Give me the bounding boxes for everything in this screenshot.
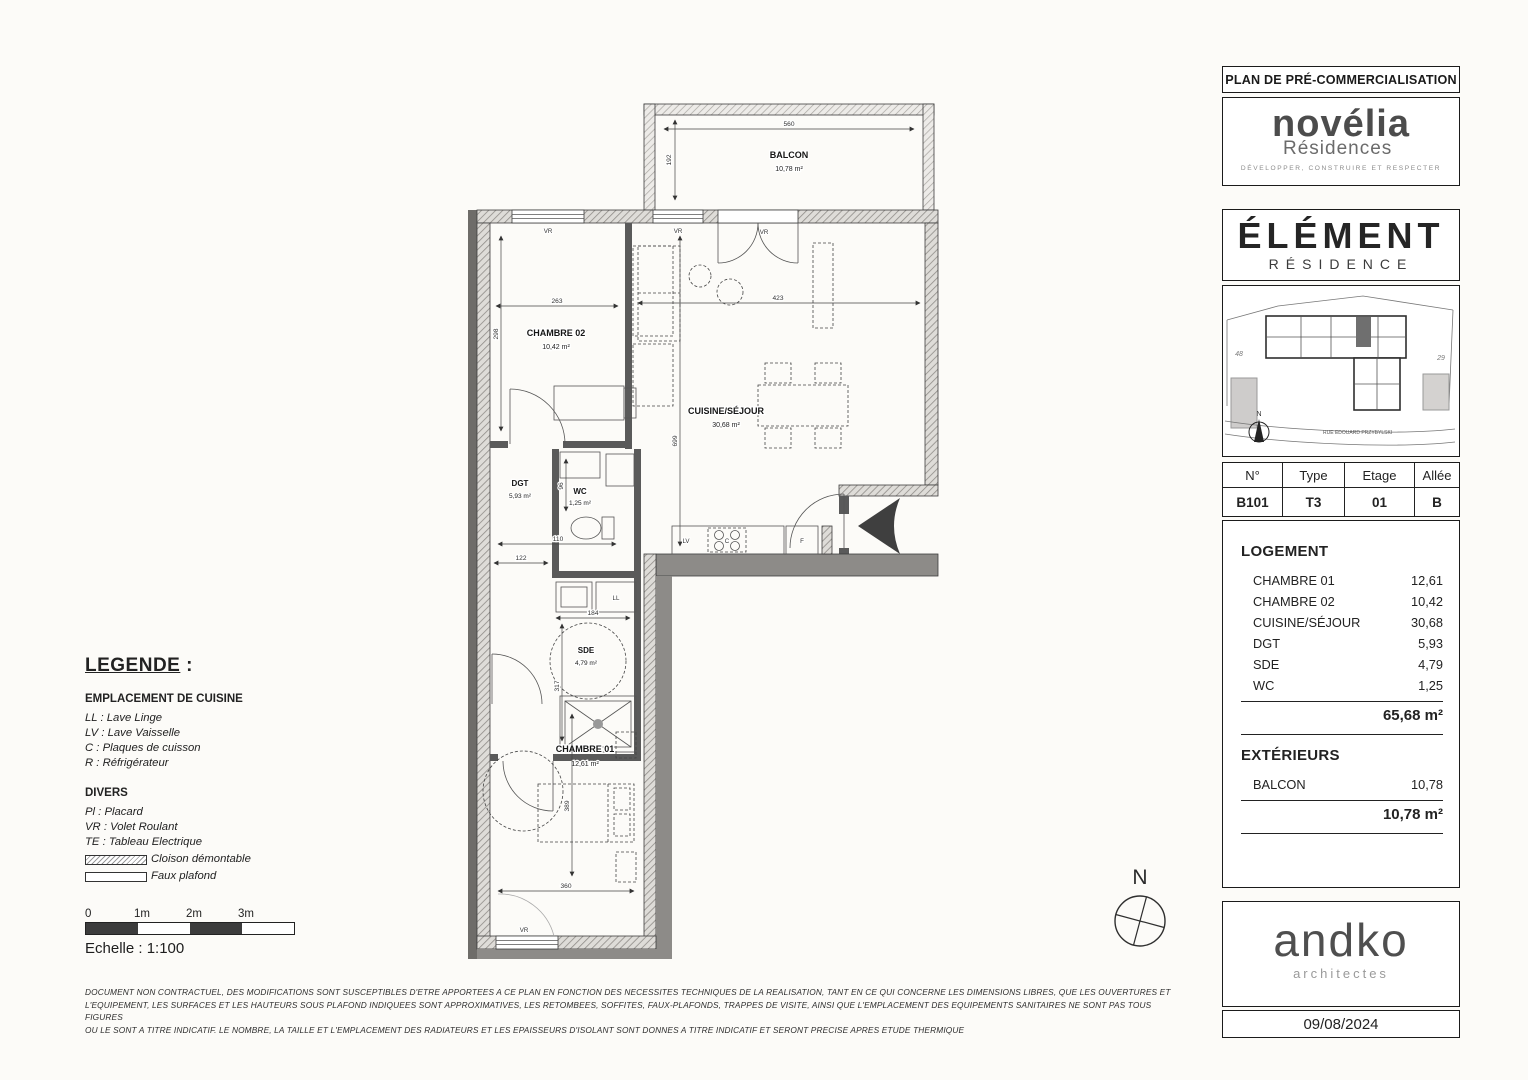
exterieurs-total: 10,78 m² [1241,801,1443,828]
floor-plan-drawing: 560 192 BALCON 10,78 m² [468,96,944,970]
area-row: CHAMBRE 0112,61 [1241,570,1443,591]
dim-balcon-height: 192 [666,154,673,165]
entrance-door-arc [790,494,844,548]
entrance-arrow-icon [858,498,900,554]
door-arc [492,654,542,704]
room-balcon-name: BALCON [770,150,809,160]
bed-chambre02 [554,386,624,420]
novelia-logo: novélia Résidences DÉVELOPPER, CONSTRUIR… [1222,97,1460,186]
novelia-tagline: DÉVELOPPER, CONSTRUIRE ET RESPECTER [1223,165,1459,172]
window [653,210,703,223]
disclaimer-line: L'EQUIPEMENT, LES SURFACES ET LES HAUTEU… [85,999,1180,1024]
pouf [689,265,711,287]
label-c: C [725,538,730,545]
north-indicator: N [1108,866,1172,957]
highlighted-unit [1356,317,1371,347]
legend-title: LEGENDE : [85,655,355,677]
legend-item: R : Réfrigérateur [85,756,355,771]
dim-sde-width: 184 [587,610,598,617]
placard [633,246,673,336]
legend-item: Pl : Placard [85,805,355,820]
turning-circle [483,751,563,831]
room-chambre02-name: CHAMBRE 02 [527,328,586,338]
room-wc-name: WC [573,487,587,496]
logement-total: 65,68 m² [1241,702,1443,729]
legend-swatch-row: Faux plafond [85,869,355,884]
scale-bar-segments [85,922,295,935]
scale-tick: 0 [85,908,91,920]
disclaimer-line: DOCUMENT NON CONTRACTUEL, DES MODIFICATI… [85,986,1180,999]
plain-swatch-icon [85,872,147,882]
legend-item: VR : Volet Roulant [85,820,355,835]
french-door-opening [718,210,798,223]
scale-tick: 1m [134,908,150,920]
logement-title: LOGEMENT [1241,543,1443,560]
exterieurs-title: EXTÉRIEURS [1241,747,1443,764]
label-vr-1: VR [544,228,553,235]
window [496,936,558,949]
legend-cuisine-title: EMPLACEMENT DE CUISINE [85,693,355,705]
unit-header-floor: Etage [1345,463,1415,488]
unit-header-alley: Allée [1415,463,1459,488]
scale-tick: 3m [238,908,254,920]
disclaimer: DOCUMENT NON CONTRACTUEL, DES MODIFICATI… [85,986,1180,1036]
exterior-walls: VR VR VR VR [477,210,938,959]
room-cuisine-area: 30,68 m² [712,422,740,429]
label-vr-3: VR [760,229,769,236]
unit-value-alley: B [1415,488,1459,516]
room-chambre01: CHAMBRE 01 12,61 m² 389 360 [483,714,636,891]
site-map: 48 29 RUE EDOUARD PRZYBYLSKI N [1222,285,1460,457]
nightstand [616,852,636,882]
floorplan-sheet: 560 192 BALCON 10,78 m² [0,0,1528,1080]
novelia-sub: Résidences [1283,138,1459,160]
area-row: CUISINE/SÉJOUR30,68 [1241,612,1443,633]
dim-wc-height: 96 [558,482,565,490]
scale-bar: 0 1m 2m 3m Echelle : 1:100 [85,908,325,957]
unit-value-num: B101 [1223,488,1283,516]
site-map-drawing: 48 29 RUE EDOUARD PRZYBYLSKI N [1223,286,1457,455]
novelia-name: novélia [1223,106,1459,142]
unit-header-num: N° [1223,463,1283,488]
scale-label: Echelle : 1:100 [85,940,325,957]
legend-divers-title: DIVERS [85,787,355,799]
scale-ticks: 0 1m 2m 3m [85,908,325,922]
label-f: F [800,538,804,545]
room-chambre01-name: CHAMBRE 01 [556,744,615,754]
room-sde-name: SDE [578,646,595,655]
unit-info-table: N° Type Etage Allée B101 T3 01 B [1222,462,1460,517]
building-footprint [1266,316,1406,410]
area-row: CHAMBRE 0210,42 [1241,591,1443,612]
room-dgt-name: DGT [512,479,529,488]
map-parcel-right: 29 [1436,355,1445,362]
date-box: 09/08/2024 [1222,1010,1460,1038]
room-dgt-wc: WC 1,25 m² 96 110 DGT 5,93 m² 122 [494,449,641,578]
dim-balcon-width: 560 [783,121,794,128]
room-cuisine-sejour: 423 699 CUISINE/SÉJOUR 30,68 m² LV C F [638,236,920,554]
room-dgt-area: 5,93 m² [509,493,532,500]
door-arc [503,761,553,811]
duct [606,454,634,486]
north-label: N [1108,866,1172,890]
map-parcel-left: 48 [1235,351,1243,358]
room-balcon-area: 10,78 m² [775,166,803,173]
dim-ch2-height: 298 [493,328,500,339]
area-row: DGT5,93 [1241,633,1443,654]
architect-sub: architectes [1223,966,1459,981]
dim-ch1-height: 389 [564,800,571,811]
dim-ch2-width: 263 [551,298,562,305]
label-lv: LV [682,538,690,545]
element-logo: ÉLÉMENT RÉSIDENCE [1222,209,1460,281]
hatch-swatch-icon [85,855,147,865]
unit-header-type: Type [1283,463,1345,488]
room-chambre02-area: 10,42 m² [542,344,570,351]
door-arc [510,389,565,444]
element-sub: RÉSIDENCE [1223,256,1459,272]
disclaimer-line: OU LE SONT A TITRE INDICATIF. LE NOMBRE,… [85,1024,1180,1037]
room-chambre01-area: 12,61 m² [571,761,599,768]
dim-sde-height: 317 [554,680,561,691]
legend-swatch-label: Cloison démontable [151,852,251,867]
dim-wc-width: 110 [553,536,564,543]
pouf [717,279,743,305]
area-row: WC1,25 [1241,675,1443,696]
room-sde-area: 4,79 m² [575,660,598,667]
room-wc-area: 1,25 m² [569,500,592,507]
toilet [571,517,601,539]
sheet-title: PLAN DE PRÉ-COMMERCIALISATION [1222,66,1460,93]
sofa [638,246,680,341]
room-sde: LL 184 SDE 4,79 m² 317 [490,571,641,761]
scale-tick: 2m [186,908,202,920]
architect-name: andko [1223,916,1459,964]
unit-value-type: T3 [1283,488,1345,516]
element-name: ÉLÉMENT [1223,218,1459,254]
balcony: 560 192 BALCON 10,78 m² [644,104,934,210]
dining-table [758,385,848,426]
french-door [718,223,798,263]
area-row: SDE4,79 [1241,654,1443,675]
room-cuisine-name: CUISINE/SÉJOUR [688,406,765,416]
neighbour-wall [468,210,477,959]
legend-swatch-label: Faux plafond [151,869,216,884]
legend-swatch-row: Cloison démontable [85,852,355,867]
dim-cuisine-width: 423 [772,295,783,302]
label-vr-2: VR [674,228,683,235]
legend-item: LL : Lave Linge [85,711,355,726]
unit-value-floor: 01 [1345,488,1415,516]
dim-ch1-width: 360 [560,883,571,890]
compass-icon [1109,890,1171,952]
room-chambre02: 263 298 CHAMBRE 02 10,42 m² [490,223,673,449]
map-street-label: RUE EDOUARD PRZYBYLSKI [1323,430,1392,436]
legend-item: LV : Lave Vaisselle [85,726,355,741]
window [512,210,584,223]
dim-dgt-width: 122 [515,555,526,562]
dim-cuisine-height: 699 [672,435,679,446]
legend-item: C : Plaques de cuisson [85,741,355,756]
architect-logo: andko architectes [1222,901,1460,1007]
placard [633,344,673,406]
label-vr-4: VR [520,927,529,934]
legend: LEGENDE : EMPLACEMENT DE CUISINE LL : La… [85,655,355,884]
area-row: BALCON10,78 [1241,774,1443,795]
tv-unit [813,243,833,328]
legend-item: TE : Tableau Electrique [85,835,355,850]
washbasin [556,582,592,612]
label-ll: LL [613,595,620,602]
areas-panel: LOGEMENT CHAMBRE 0112,61 CHAMBRE 0210,42… [1222,520,1460,888]
bed-chambre01 [538,784,634,842]
svg-text:N: N [1256,411,1261,418]
